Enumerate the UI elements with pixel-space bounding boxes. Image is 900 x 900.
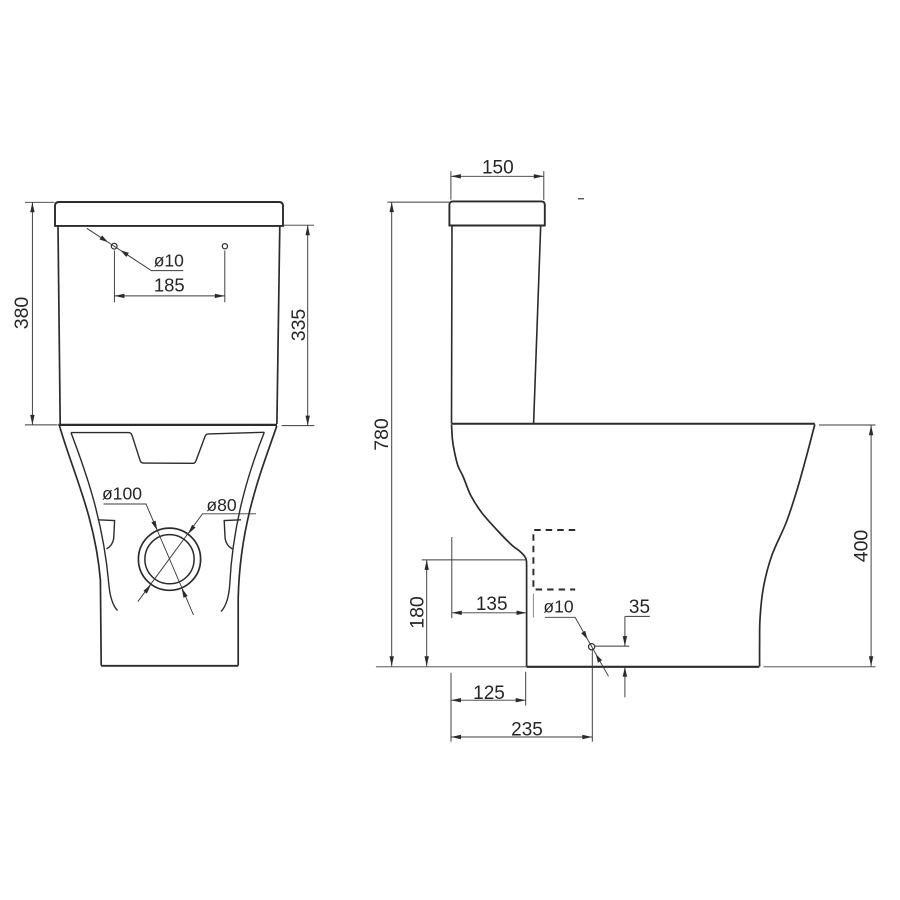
svg-text:400: 400 — [850, 530, 872, 563]
svg-text:335: 335 — [288, 309, 310, 342]
svg-text:ø80: ø80 — [206, 495, 237, 515]
svg-text:35: 35 — [629, 597, 650, 618]
svg-text:ø100: ø100 — [102, 484, 142, 504]
svg-text:150: 150 — [482, 157, 514, 178]
svg-text:ø10: ø10 — [543, 597, 573, 617]
svg-text:185: 185 — [154, 275, 185, 296]
svg-text:780: 780 — [371, 418, 393, 451]
svg-text:180: 180 — [407, 596, 429, 629]
svg-text:ø10: ø10 — [154, 251, 184, 271]
svg-text:380: 380 — [11, 297, 33, 330]
svg-text:235: 235 — [511, 720, 543, 741]
svg-text:125: 125 — [473, 683, 505, 704]
svg-text:135: 135 — [476, 594, 508, 615]
